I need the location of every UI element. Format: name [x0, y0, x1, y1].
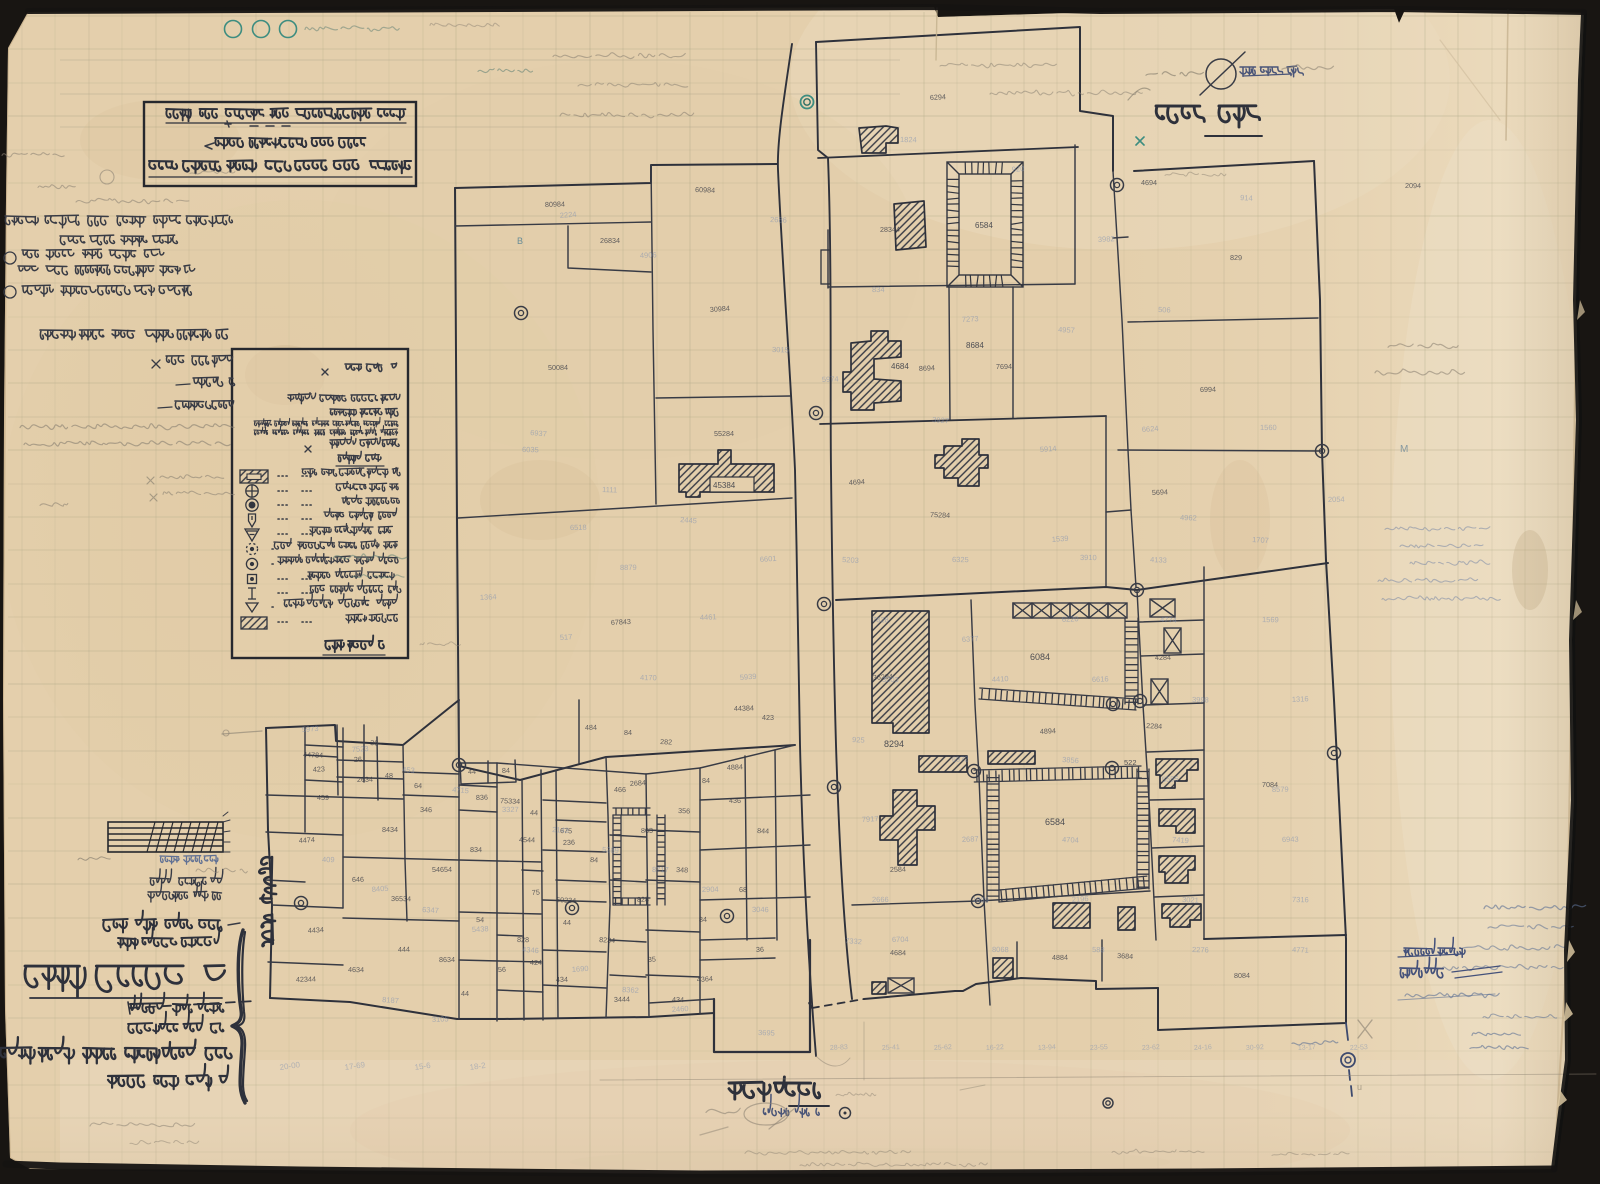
svg-text:4694: 4694	[1141, 178, 1157, 187]
svg-text:25-62: 25-62	[934, 1044, 952, 1052]
svg-text:236: 236	[563, 838, 575, 847]
svg-text:6347: 6347	[422, 905, 439, 915]
svg-text:1316: 1316	[1292, 694, 1309, 704]
svg-text:6624: 6624	[1142, 424, 1159, 434]
svg-text:356: 356	[678, 806, 690, 816]
svg-text:4634: 4634	[348, 965, 364, 974]
svg-text:434: 434	[672, 995, 684, 1004]
svg-text:834: 834	[470, 845, 482, 854]
svg-text:4774: 4774	[1160, 615, 1177, 625]
svg-text:84: 84	[624, 728, 632, 737]
svg-text:3203: 3203	[882, 675, 899, 684]
svg-text:4410: 4410	[992, 674, 1009, 684]
svg-text:8579: 8579	[1272, 785, 1289, 794]
svg-text:8187: 8187	[382, 995, 399, 1005]
svg-text:424: 424	[530, 958, 542, 967]
svg-text:36: 36	[756, 945, 764, 954]
svg-text:13-17: 13-17	[1298, 1044, 1316, 1052]
svg-text:348: 348	[676, 865, 688, 875]
svg-text:60234: 60234	[556, 895, 576, 905]
svg-text:3105: 3105	[432, 1014, 449, 1024]
svg-text:4364: 4364	[697, 974, 714, 984]
svg-text:44: 44	[468, 767, 476, 776]
svg-text:23-62: 23-62	[1142, 1044, 1160, 1052]
svg-text:55284: 55284	[714, 429, 734, 438]
svg-text:2686: 2686	[770, 215, 787, 225]
svg-text:1707: 1707	[1252, 535, 1269, 545]
svg-text:8068: 8068	[992, 945, 1009, 954]
svg-text:84: 84	[502, 766, 510, 775]
svg-text:28-83: 28-83	[830, 1044, 848, 1052]
svg-text:24-16: 24-16	[1194, 1044, 1212, 1052]
svg-text:8434: 8434	[382, 825, 398, 834]
svg-text:2445: 2445	[680, 515, 697, 525]
svg-text:4474: 4474	[299, 835, 316, 845]
svg-text:67843: 67843	[611, 617, 631, 627]
svg-text:3684: 3684	[1117, 951, 1133, 961]
svg-text:3021: 3021	[1182, 895, 1199, 905]
svg-text:7419: 7419	[1172, 835, 1189, 845]
svg-text:28344: 28344	[880, 225, 900, 234]
svg-text:7273: 7273	[962, 314, 979, 324]
svg-text:2666: 2666	[872, 895, 889, 904]
svg-text:6704: 6704	[892, 935, 909, 944]
svg-text:4684: 4684	[890, 948, 906, 957]
svg-text:459: 459	[317, 793, 329, 802]
svg-text:4684: 4684	[891, 362, 909, 371]
svg-text:4884: 4884	[1052, 953, 1068, 962]
svg-text:828: 828	[637, 895, 649, 904]
svg-text:4957: 4957	[1058, 325, 1075, 335]
svg-text:8294: 8294	[884, 739, 904, 749]
svg-text:5555: 5555	[1162, 774, 1179, 784]
svg-text:45384: 45384	[713, 481, 736, 490]
svg-text:6616: 6616	[1092, 674, 1109, 684]
svg-text:506: 506	[1158, 305, 1171, 315]
svg-text:834: 834	[872, 285, 885, 294]
svg-text:925: 925	[852, 735, 865, 745]
svg-text:30984: 30984	[710, 304, 731, 314]
svg-text:84: 84	[699, 915, 707, 924]
svg-text:54654: 54654	[432, 865, 452, 874]
svg-text:1560: 1560	[1260, 423, 1277, 432]
svg-text:30-92: 30-92	[1246, 1044, 1264, 1052]
svg-text:23-55: 23-55	[1090, 1044, 1108, 1052]
svg-text:828: 828	[517, 935, 529, 944]
svg-text:282: 282	[660, 737, 672, 747]
svg-text:16-22: 16-22	[986, 1044, 1004, 1052]
svg-text:2634: 2634	[357, 775, 373, 784]
svg-text:1569: 1569	[1262, 615, 1279, 624]
svg-text:4694: 4694	[849, 477, 866, 487]
svg-text:64: 64	[414, 781, 422, 790]
svg-text:4461: 4461	[700, 612, 717, 622]
svg-text:M: M	[1400, 444, 1408, 455]
svg-text:84: 84	[702, 776, 710, 785]
svg-text:409: 409	[322, 855, 335, 864]
svg-text:80984: 80984	[545, 199, 565, 209]
svg-text:3695: 3695	[758, 1028, 775, 1038]
svg-text:2684: 2684	[630, 778, 646, 788]
svg-text:44: 44	[461, 989, 469, 998]
svg-text:4284: 4284	[1155, 653, 1171, 662]
svg-text:44384: 44384	[734, 703, 754, 713]
svg-text:5438: 5438	[472, 924, 489, 934]
svg-text:1539: 1539	[1051, 534, 1068, 544]
svg-text:2196: 2196	[1072, 894, 1089, 904]
svg-text:4133: 4133	[1150, 555, 1167, 565]
svg-text:6084: 6084	[1030, 652, 1050, 662]
svg-text:423: 423	[313, 764, 325, 774]
svg-text:2284: 2284	[1146, 721, 1162, 731]
svg-text:2094: 2094	[1405, 181, 1421, 190]
svg-text:588: 588	[1092, 945, 1105, 954]
svg-text:75284: 75284	[930, 510, 950, 520]
svg-text:453: 453	[402, 765, 415, 775]
svg-text:6972: 6972	[952, 754, 969, 764]
svg-text:4704: 4704	[1062, 835, 1079, 845]
svg-text:44: 44	[563, 918, 571, 927]
svg-text:517: 517	[559, 632, 572, 642]
svg-text:4906: 4906	[640, 250, 657, 260]
svg-text:5289: 5289	[602, 845, 619, 855]
svg-text:7828: 7828	[872, 615, 889, 624]
svg-text:920: 920	[1011, 164, 1024, 174]
svg-text:522: 522	[1124, 758, 1137, 767]
svg-text:2224: 2224	[559, 210, 576, 220]
svg-text:u: u	[1357, 1082, 1362, 1092]
svg-text:914: 914	[1240, 193, 1253, 203]
svg-text:2460: 2460	[672, 1004, 689, 1014]
svg-text:3015: 3015	[772, 345, 789, 355]
svg-text:2276: 2276	[1192, 945, 1209, 955]
svg-text:6518: 6518	[570, 523, 587, 532]
svg-text:6937: 6937	[530, 428, 547, 438]
svg-text:6994: 6994	[1200, 385, 1216, 394]
svg-text:7694: 7694	[996, 362, 1012, 371]
svg-text:1824: 1824	[900, 135, 917, 144]
svg-text:836: 836	[476, 793, 488, 802]
svg-text:4170: 4170	[640, 673, 657, 682]
svg-text:36: 36	[370, 738, 379, 748]
svg-text:434: 434	[556, 975, 568, 984]
svg-text:484: 484	[585, 723, 597, 732]
svg-text:3856: 3856	[1062, 755, 1079, 765]
svg-text:1889: 1889	[972, 895, 989, 905]
svg-text:3046: 3046	[752, 905, 769, 914]
svg-text:5939: 5939	[739, 672, 756, 682]
svg-text:8634: 8634	[439, 955, 455, 964]
svg-text:423: 423	[762, 713, 774, 722]
svg-text:1364: 1364	[480, 592, 497, 602]
svg-text:50084: 50084	[548, 363, 568, 372]
svg-text:6325: 6325	[952, 555, 969, 564]
svg-text:8084: 8084	[1234, 971, 1250, 980]
svg-text:6035: 6035	[522, 445, 539, 454]
svg-text:4771: 4771	[1292, 945, 1309, 955]
svg-text:5694: 5694	[1152, 487, 1168, 497]
svg-text:2904: 2904	[702, 885, 719, 894]
svg-text:5974: 5974	[822, 374, 839, 384]
svg-text:346: 346	[420, 805, 432, 814]
svg-text:6584: 6584	[975, 221, 993, 230]
svg-text:6943: 6943	[1282, 835, 1299, 844]
svg-text:75: 75	[532, 888, 541, 897]
svg-text:84: 84	[590, 855, 598, 864]
svg-text:6220: 6220	[1062, 614, 1079, 624]
svg-text:26: 26	[354, 755, 362, 764]
svg-text:863: 863	[641, 826, 653, 835]
svg-text:2143: 2143	[552, 825, 569, 835]
svg-text:3982: 3982	[1098, 234, 1115, 244]
svg-text:7917: 7917	[862, 814, 879, 824]
svg-text:8879: 8879	[620, 563, 637, 572]
svg-text:5973: 5973	[302, 724, 319, 734]
svg-text:85: 85	[648, 955, 657, 964]
svg-text:466: 466	[614, 785, 626, 794]
svg-text:6601: 6601	[759, 554, 776, 564]
svg-text:8684: 8684	[966, 341, 984, 350]
svg-text:54: 54	[476, 915, 484, 924]
svg-text:7523: 7523	[352, 744, 369, 754]
svg-text:7332: 7332	[845, 936, 862, 946]
svg-text:829: 829	[1230, 253, 1242, 262]
svg-text:42344: 42344	[296, 974, 316, 984]
svg-text:4894: 4894	[1040, 726, 1056, 736]
svg-text:8234: 8234	[599, 935, 616, 945]
svg-text:3910: 3910	[1080, 553, 1097, 562]
svg-text:436: 436	[729, 796, 741, 805]
svg-text:48: 48	[385, 771, 393, 780]
svg-text:36534: 36534	[391, 894, 411, 903]
svg-text:3927: 3927	[932, 415, 949, 425]
svg-text:B: B	[517, 236, 523, 246]
svg-text:26834: 26834	[600, 236, 620, 245]
svg-text:13-94: 13-94	[1038, 1044, 1056, 1052]
svg-text:1111: 1111	[602, 485, 617, 495]
svg-text:60984: 60984	[695, 185, 715, 195]
svg-text:6377: 6377	[962, 634, 979, 644]
svg-text:844: 844	[757, 826, 769, 836]
svg-text:8694: 8694	[919, 363, 935, 373]
svg-text:2054: 2054	[1328, 495, 1345, 504]
svg-text:5203: 5203	[842, 555, 859, 565]
svg-text:5914: 5914	[1040, 444, 1057, 454]
svg-text:56: 56	[498, 965, 506, 974]
svg-text:4715: 4715	[452, 785, 469, 795]
svg-text:2584: 2584	[890, 864, 906, 874]
svg-text:444: 444	[398, 945, 410, 954]
svg-text:68: 68	[739, 885, 747, 894]
svg-text:646: 646	[352, 875, 364, 884]
svg-text:3998: 3998	[1192, 695, 1209, 705]
svg-text:2687: 2687	[962, 834, 979, 844]
svg-text:4346: 4346	[522, 945, 539, 955]
svg-text:4884: 4884	[727, 762, 743, 772]
svg-text:22-53: 22-53	[1350, 1044, 1368, 1052]
svg-text:4544: 4544	[519, 835, 535, 844]
svg-text:8717: 8717	[652, 865, 669, 874]
svg-text:6584: 6584	[1045, 817, 1065, 827]
svg-text:25-41: 25-41	[882, 1044, 900, 1052]
svg-text:4434: 4434	[308, 925, 325, 935]
svg-text:1690: 1690	[571, 964, 588, 974]
svg-text:3327: 3327	[502, 805, 519, 814]
svg-text:44784: 44784	[303, 750, 323, 760]
svg-text:8362: 8362	[622, 985, 639, 995]
svg-text:8405: 8405	[371, 884, 388, 894]
svg-text:6294: 6294	[930, 92, 946, 102]
svg-text:3444: 3444	[614, 995, 630, 1004]
svg-text:7316: 7316	[1292, 895, 1309, 904]
svg-text:4962: 4962	[1180, 513, 1197, 522]
svg-text:44: 44	[530, 808, 538, 817]
